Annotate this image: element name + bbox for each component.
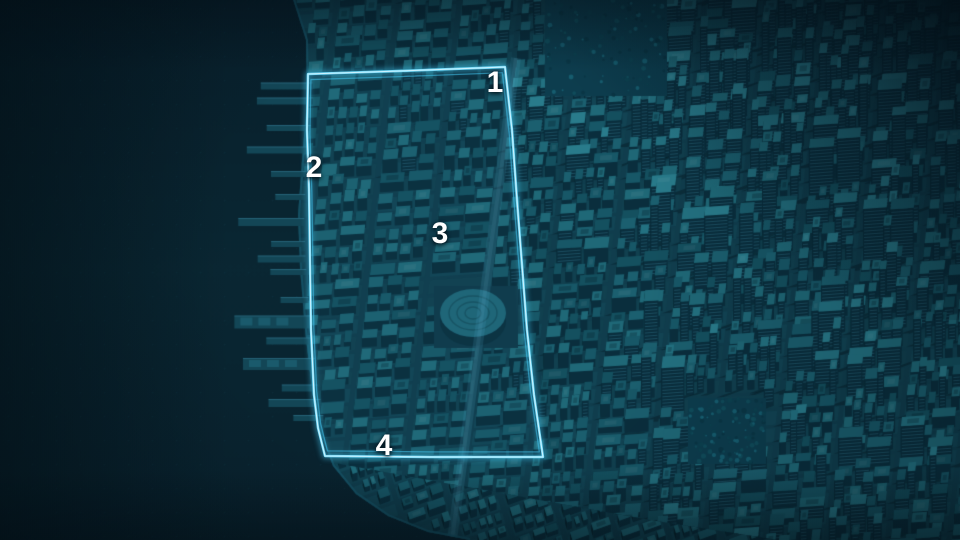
city-map-scene: 1 2 3 4 [0, 0, 960, 540]
region-marker-3: 3 [432, 219, 449, 249]
region-marker-4: 4 [376, 431, 393, 461]
region-marker-2: 2 [306, 153, 323, 183]
highlight-region-overlay [0, 0, 960, 540]
region-marker-1: 1 [487, 68, 504, 98]
